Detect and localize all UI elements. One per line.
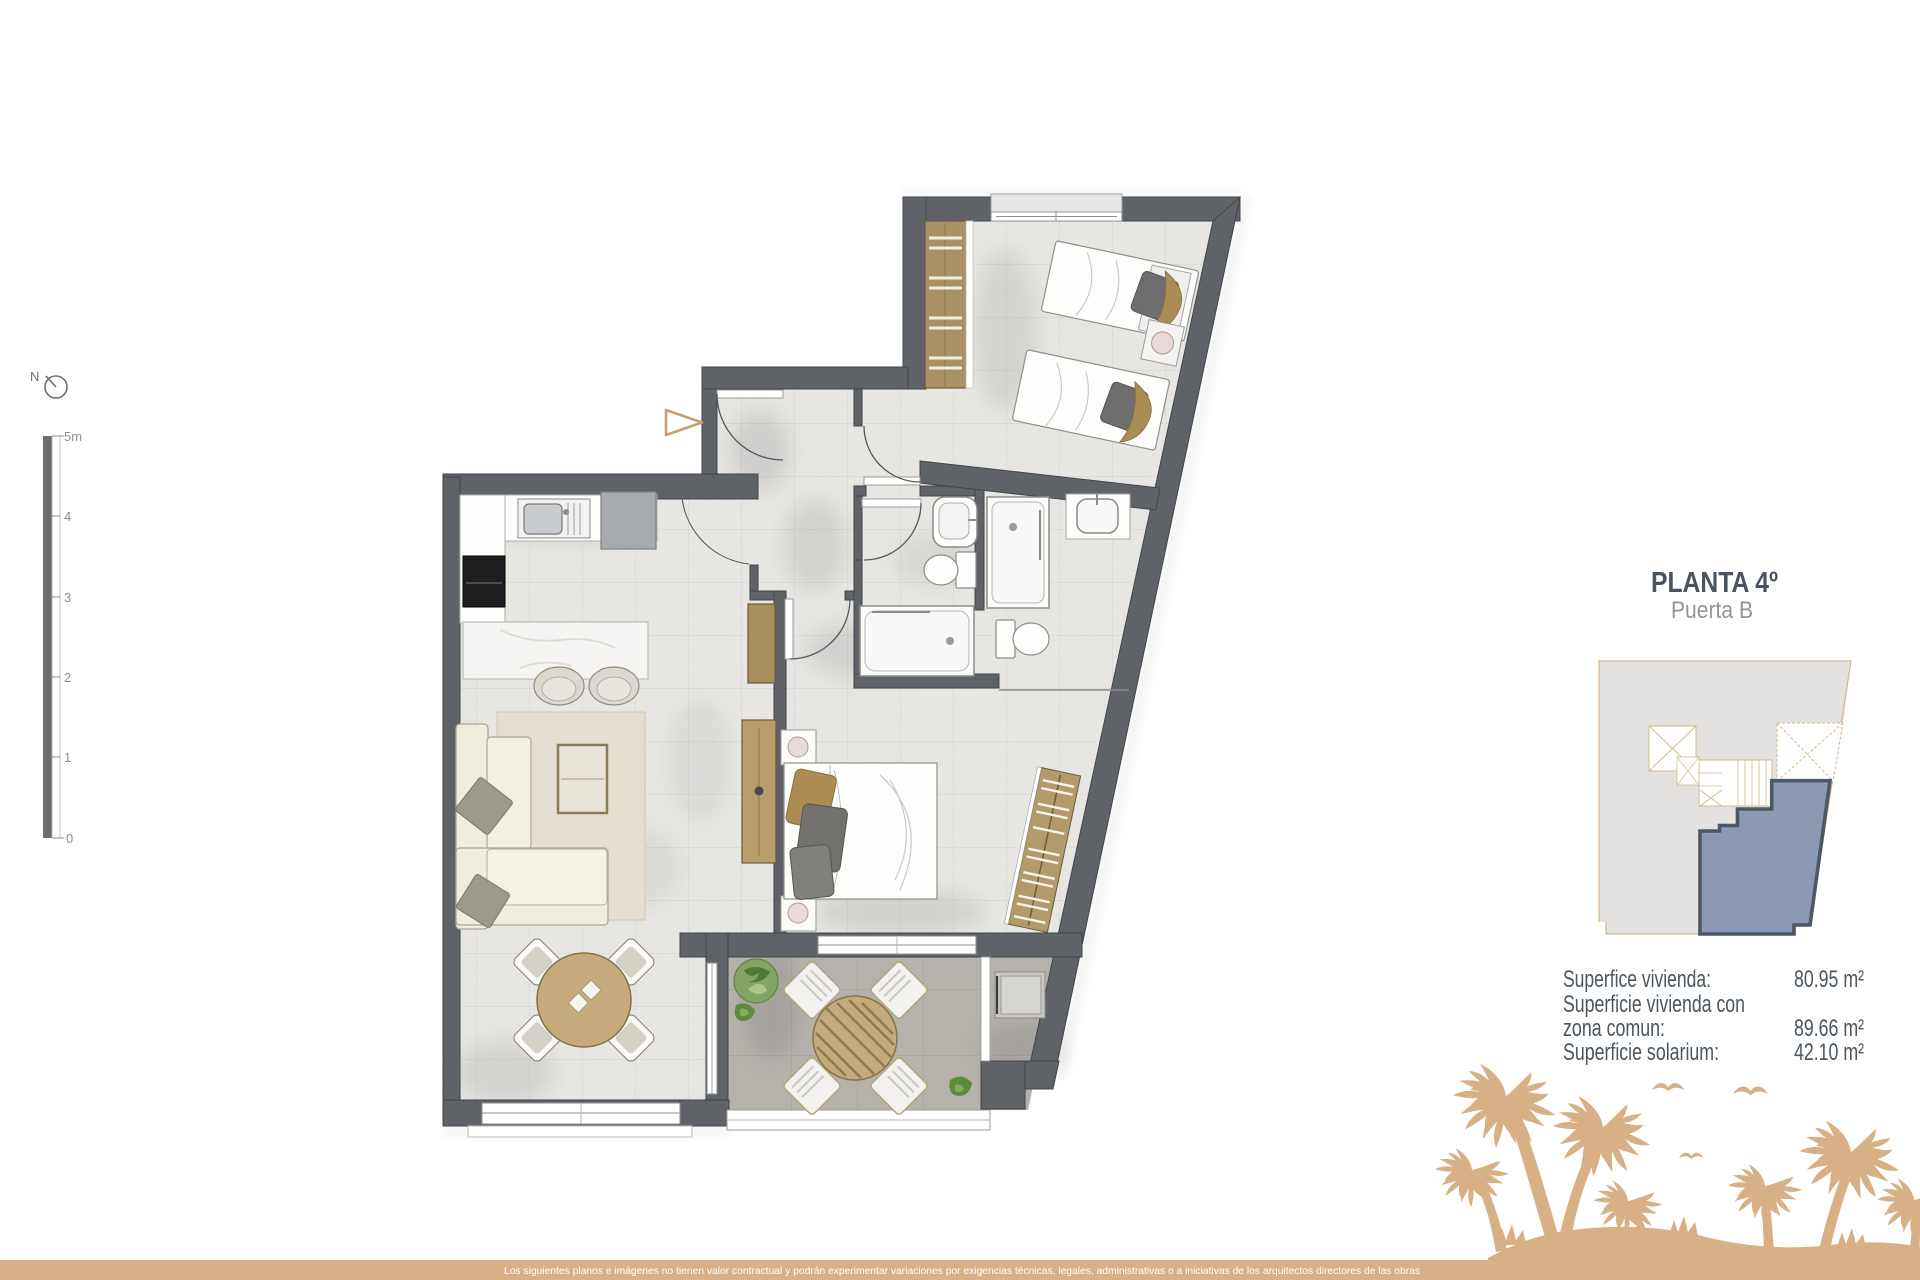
svg-text:N: N (30, 369, 39, 384)
svg-text:Los siguientes planos e imágen: Los siguientes planos e imágenes no tien… (504, 1265, 1420, 1277)
svg-text:zona comun:: zona comun: (1563, 1015, 1665, 1042)
svg-text:Superficie solarium:: Superficie solarium: (1563, 1039, 1719, 1066)
svg-text:3: 3 (64, 590, 71, 605)
svg-text:4: 4 (64, 509, 71, 524)
svg-text:Superficie vivienda con: Superficie vivienda con (1563, 991, 1745, 1018)
svg-text:80.95 m²: 80.95 m² (1794, 966, 1864, 993)
svg-text:5m: 5m (64, 429, 82, 444)
svg-text:89.66 m²: 89.66 m² (1794, 1015, 1864, 1042)
svg-text:0: 0 (66, 831, 73, 846)
svg-text:Puerta B: Puerta B (1671, 597, 1753, 624)
svg-text:Superfice vivienda:: Superfice vivienda: (1563, 966, 1711, 993)
svg-text:PLANTA 4º: PLANTA 4º (1651, 567, 1778, 599)
svg-text:42.10 m²: 42.10 m² (1794, 1039, 1864, 1066)
svg-text:1: 1 (64, 750, 71, 765)
svg-text:2: 2 (64, 670, 71, 685)
